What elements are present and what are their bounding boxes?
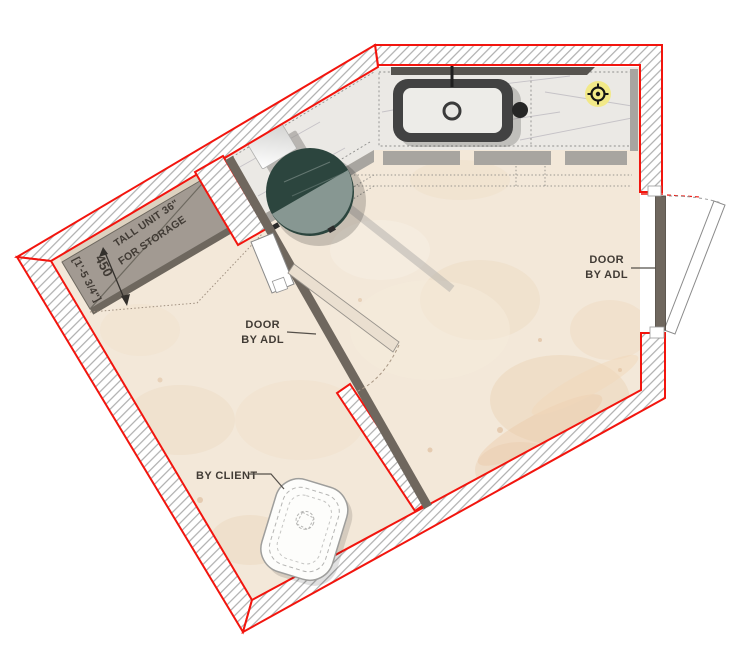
- cabinet-base-shade: [565, 151, 627, 165]
- counter-control-dot: [512, 102, 528, 118]
- entry-door-label-line1: DOOR: [589, 254, 624, 266]
- ceiling-light-icon: [585, 81, 611, 107]
- cabinet-base-shade: [383, 151, 460, 165]
- floor-plan-drawing: TALL UNIT 36" FOR STORAGE 450 [1'-5 3/4"…: [0, 0, 751, 671]
- door-jamb: [650, 327, 664, 338]
- entry-door: [648, 186, 725, 338]
- entry-door-leaf-open: [664, 201, 725, 334]
- interior-door-label-line1: DOOR: [245, 319, 280, 331]
- cabinet-base-shade: [474, 151, 551, 165]
- entry-door-label-line2: BY ADL: [585, 269, 628, 281]
- sink-drain: [444, 103, 460, 119]
- toilet-label: BY CLIENT: [196, 470, 257, 482]
- counter-end-panel: [630, 69, 638, 151]
- entry-door-panel: [656, 196, 666, 330]
- floor-plan-canvas: TALL UNIT 36" FOR STORAGE 450 [1'-5 3/4"…: [0, 0, 751, 671]
- door-jamb: [648, 186, 661, 196]
- interior-door-label-line2: BY ADL: [241, 334, 284, 346]
- mirror-backsplash-bar: [391, 67, 595, 75]
